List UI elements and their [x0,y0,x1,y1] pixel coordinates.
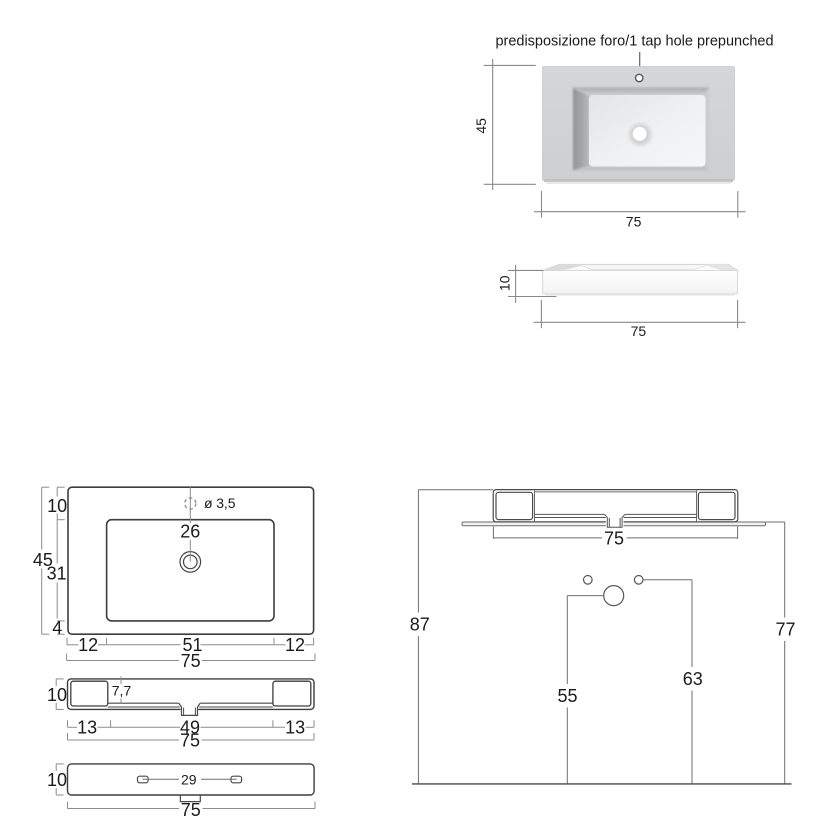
svg-text:55: 55 [557,686,577,706]
svg-text:75: 75 [181,800,201,820]
svg-text:13: 13 [77,718,97,738]
svg-text:ø 3,5: ø 3,5 [204,495,236,511]
svg-text:10: 10 [47,496,67,516]
svg-text:45: 45 [473,118,489,134]
svg-text:12: 12 [78,635,98,655]
svg-text:13: 13 [285,718,305,738]
svg-text:75: 75 [181,651,201,671]
svg-text:predisposizione foro/1 tap hol: predisposizione foro/1 tap hole prepunch… [495,34,773,50]
svg-text:12: 12 [285,635,305,655]
svg-text:75: 75 [626,214,642,230]
svg-text:29: 29 [181,771,197,787]
svg-text:77: 77 [775,620,795,640]
svg-text:31: 31 [47,564,67,584]
svg-text:10: 10 [47,770,67,790]
svg-text:10: 10 [497,275,513,291]
svg-text:7,7: 7,7 [112,683,132,699]
svg-text:75: 75 [604,529,624,549]
svg-text:63: 63 [683,669,703,689]
svg-text:87: 87 [410,615,430,635]
svg-text:26: 26 [180,521,200,541]
svg-text:4: 4 [52,618,62,638]
svg-text:75: 75 [631,323,647,339]
svg-text:10: 10 [47,685,67,705]
svg-text:75: 75 [180,730,200,750]
